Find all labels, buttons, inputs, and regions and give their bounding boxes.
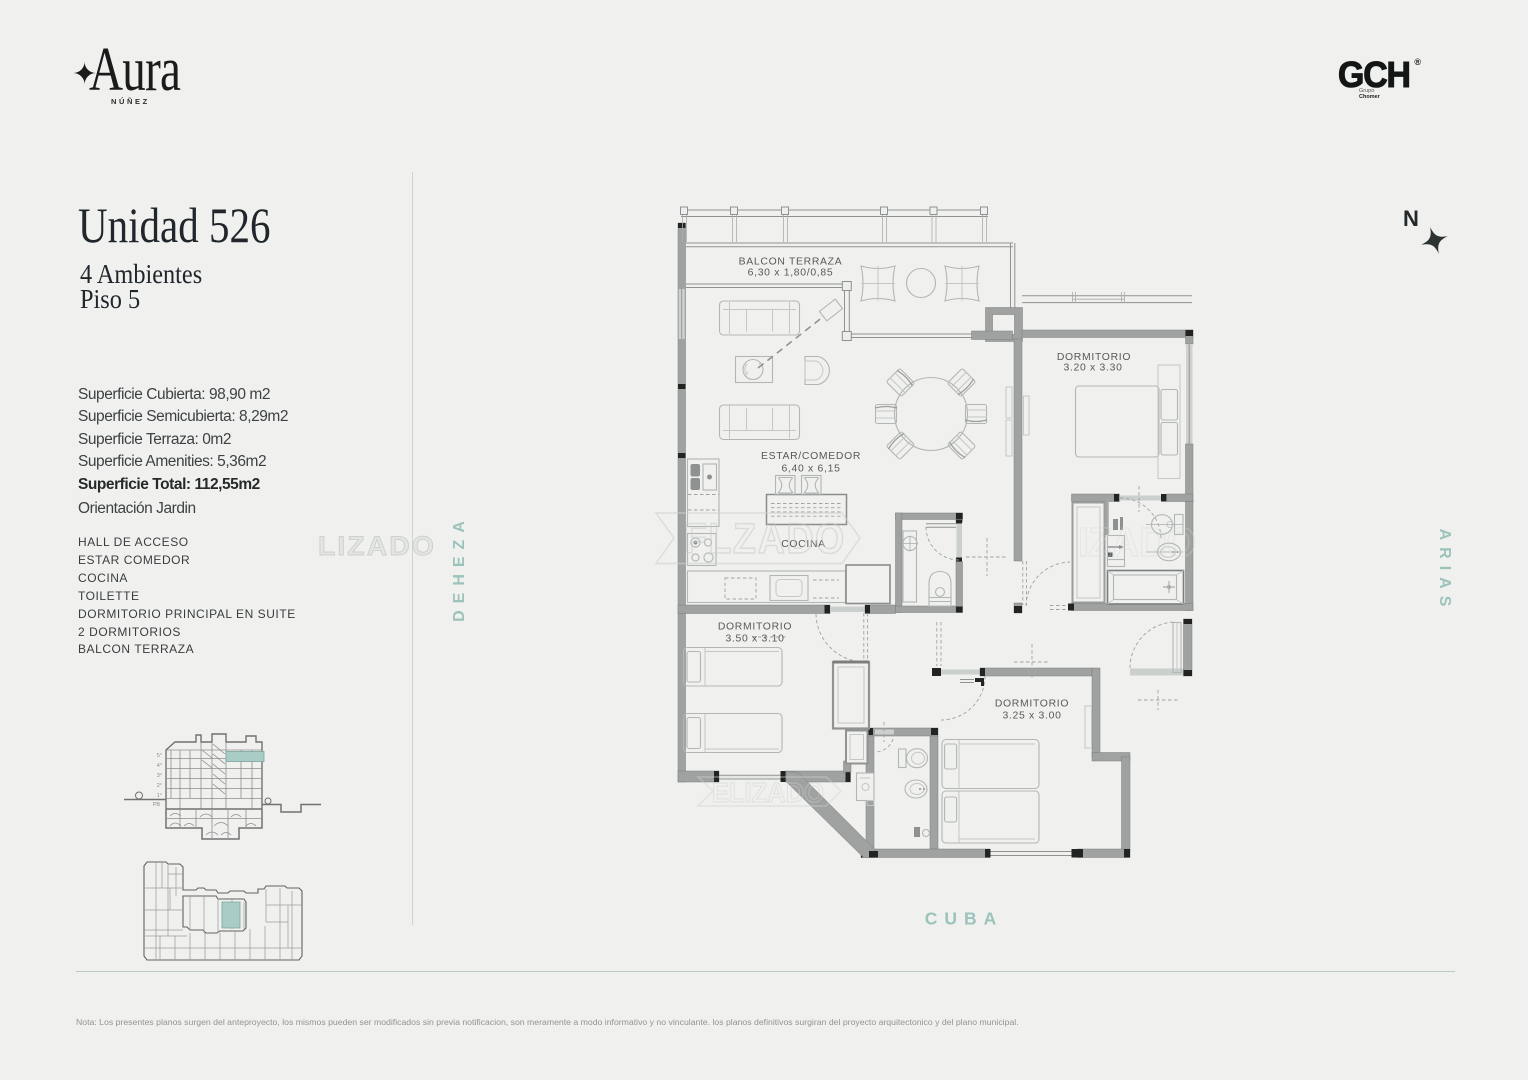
svg-text:6,30 x 1,80/0,85: 6,30 x 1,80/0,85 [748,268,834,279]
svg-text:FLZADO: FLZADO [684,515,846,563]
svg-text:DORMITORIO: DORMITORIO [1057,352,1131,363]
svg-text:ESTAR/COMEDOR: ESTAR/COMEDOR [761,451,861,462]
svg-text:2°: 2° [157,783,162,789]
svg-text:3.50 x 3.10: 3.50 x 3.10 [725,634,784,645]
svg-text:PB: PB [153,802,161,808]
svg-text:BALCON TERRAZA: BALCON TERRAZA [739,257,843,268]
svg-text:3.20 x 3.30: 3.20 x 3.30 [1063,362,1122,373]
svg-text:DORMITORIO: DORMITORIO [995,699,1069,710]
svg-text:LIZADO: LIZADO [318,531,436,561]
svg-text:5°: 5° [157,753,162,759]
svg-text:1°: 1° [157,793,162,799]
svg-text:ELIZADO: ELIZADO [712,777,824,808]
svg-text:6,40 x 6,15: 6,40 x 6,15 [781,464,840,475]
svg-text:3°: 3° [157,773,162,779]
svg-text:4°: 4° [157,763,162,769]
svg-text:DORMITORIO: DORMITORIO [718,622,792,633]
svg-text:3.25 x 3.00: 3.25 x 3.00 [1002,711,1061,722]
svg-text:IZADO: IZADO [1078,519,1196,565]
